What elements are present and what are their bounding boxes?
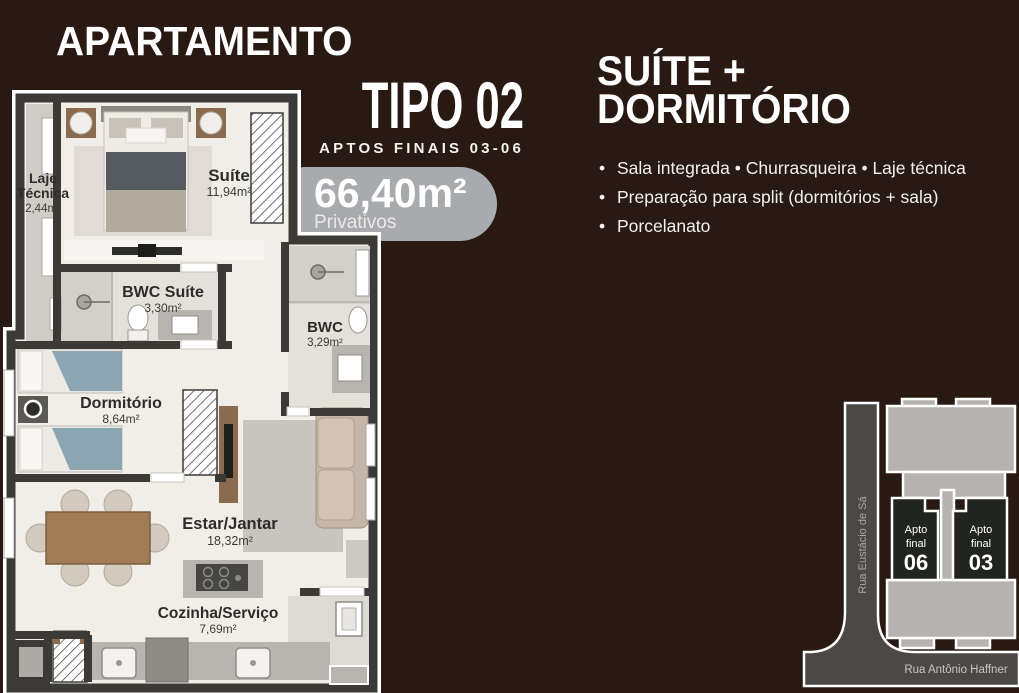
living-tv-panel xyxy=(219,406,238,503)
room-area-bwc-suite: 3,30m² xyxy=(144,301,181,315)
room-label-bwc: BWC xyxy=(307,319,343,336)
feature-item: Sala integrada • Churrasqueira • Laje té… xyxy=(597,154,1019,183)
unit-06-number: 06 xyxy=(904,550,928,575)
unit-03-line1: Apto xyxy=(970,524,993,536)
dorm-wardrobe xyxy=(183,390,217,475)
highlight-title-line2: DORMITÓRIO xyxy=(597,90,989,128)
site-map: Apto final 06 Apto final 03 Rua Eustácio… xyxy=(804,399,1019,686)
room-area-bwc: 3,29m² xyxy=(307,337,343,349)
room-label-dormitorio: Dormitório xyxy=(80,395,162,412)
unit-03-number: 03 xyxy=(969,550,993,575)
room-label-laje-2: Técnica xyxy=(17,185,69,201)
room-label-estar: Estar/Jantar xyxy=(182,515,278,533)
street-label-horizontal: Rua Antônio Haffner xyxy=(904,664,1008,676)
room-label-cozinha: Cozinha/Serviço xyxy=(158,605,279,622)
sofa xyxy=(316,408,368,528)
floor-plan: Laje Técnica 2,44m² Suíte 11,94m² BWC Su… xyxy=(4,98,375,688)
kitchen-peninsula xyxy=(183,560,263,598)
unit-06-line1: Apto xyxy=(905,524,928,536)
suite-tv-console xyxy=(64,240,264,260)
suite-wardrobe xyxy=(251,113,283,223)
room-label-bwc-suite: BWC Suíte xyxy=(122,284,204,301)
feature-item: Porcelanato xyxy=(597,212,1019,241)
room-area-cozinha: 7,69m² xyxy=(199,622,236,636)
street-label-vertical: Rua Eustácio de Sá xyxy=(857,496,869,594)
room-label-laje-1: Laje xyxy=(29,170,57,186)
room-area-estar: 18,32m² xyxy=(207,534,253,548)
feature-item: Preparação para split (dormitórios + sal… xyxy=(597,183,1019,212)
poster-background: 66,40m² Privativos APARTAMENTO TIPO 02 A… xyxy=(0,0,1019,693)
balcony-tile xyxy=(346,540,368,578)
highlight-column: SUÍTE + DORMITÓRIO Sala integrada • Chur… xyxy=(597,52,1019,241)
unit-03-line2: final xyxy=(971,538,991,550)
room-area-laje: 2,44m² xyxy=(25,203,61,215)
room-area-suite: 11,94m² xyxy=(207,185,252,199)
feature-list: Sala integrada • Churrasqueira • Laje té… xyxy=(597,154,1019,241)
room-label-suite: Suíte xyxy=(208,166,250,185)
unit-06-line2: final xyxy=(906,538,926,550)
room-area-dormitorio: 8,64m² xyxy=(102,412,139,426)
